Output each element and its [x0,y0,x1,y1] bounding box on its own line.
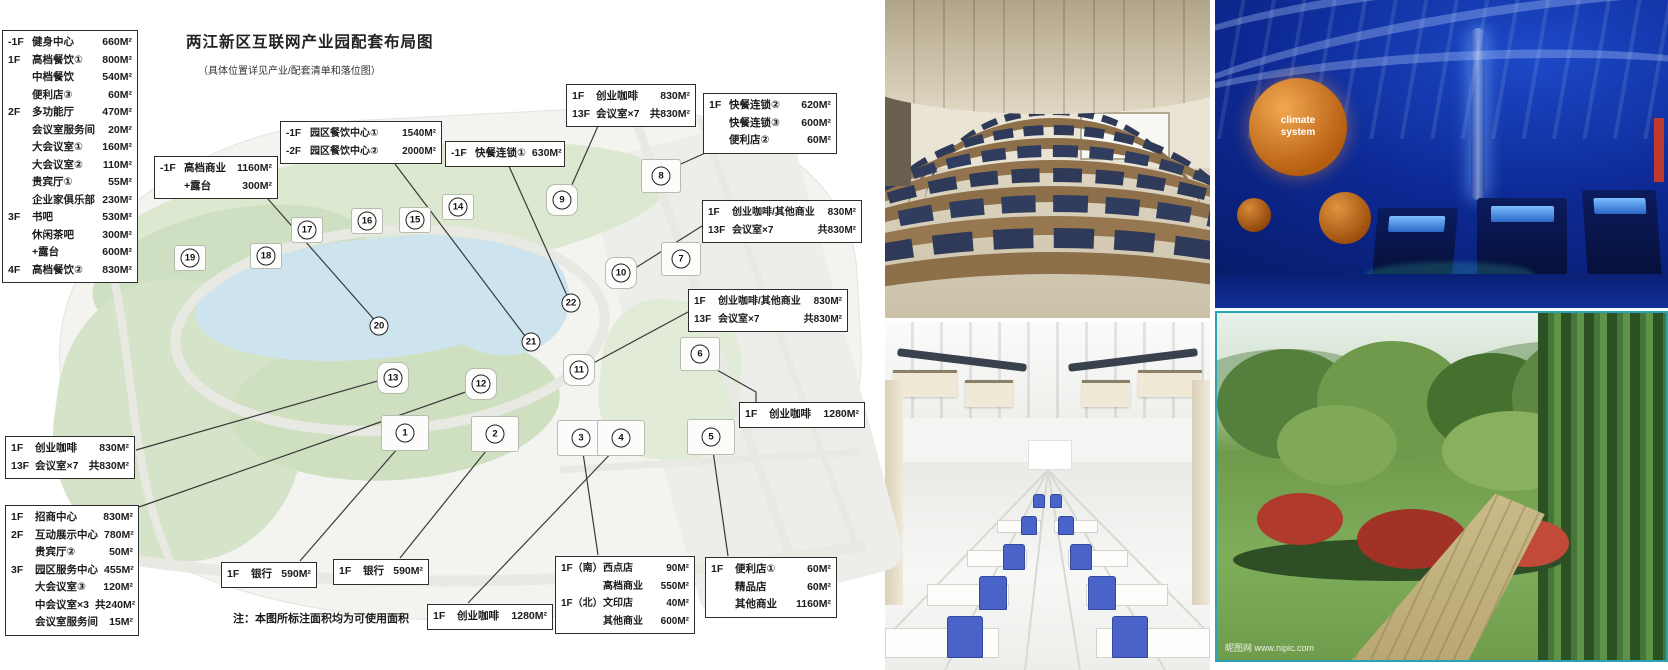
area-value: 60M² [801,579,831,597]
legend-service-center: 1F招商中心830M²2F互动展示中心780M²贵宾厅②50M²3F园区服务中心… [5,505,139,636]
area-value: 630M² [526,145,562,163]
callout-row: +露台300M² [160,178,272,196]
map-marker-2: 2 [486,425,505,444]
area-value: 20M² [102,122,132,140]
area-value: 600M² [795,115,831,133]
podium-screen [1491,206,1554,222]
watermark: 昵图网 www.nipic.com [1225,641,1314,654]
facility-name: 高档商业 [603,578,643,596]
podium-screen [1388,216,1445,232]
floor-label: 1F [708,204,732,222]
callout-row: 1F银行590M² [339,563,423,581]
callout-row: 其他商业600M² [561,613,689,631]
area-value: 660M² [96,34,132,52]
map-marker-22: 22 [562,294,581,313]
facility-name: 书吧 [32,209,53,227]
facility-name: 会议室服务间 [32,122,95,140]
floor-label: 13F [11,458,35,476]
blue-chair [1088,576,1116,610]
area-value: 830M² [93,440,129,458]
area-value: 830M² [808,293,842,311]
callout-row: 1F银行590M² [227,566,311,584]
callout-row: 13F会议室×7共830M² [11,458,129,476]
floor-label: 1F [709,97,729,115]
facility-name: +露台 [32,244,59,262]
facility-name: 会议室服务间 [35,614,98,632]
map-marker-13: 13 [384,369,403,388]
map-marker-10: 10 [612,264,631,283]
bamboo-grove [1538,313,1666,660]
facility-name: 贵宾厅② [35,544,75,562]
callout-premium-retail: -1F高档商业1160M²+露台300M² [154,156,278,199]
map-marker-8: 8 [652,167,671,186]
floor-label: 3F [8,209,32,227]
area-value: 1160M² [790,596,831,614]
floor-label: -1F [8,34,32,52]
red-flower-bush [1257,493,1343,545]
floor-label: 1F（北） [561,595,603,613]
photo-garden-path: 昵图网 www.nipic.com [1215,311,1668,662]
callout-row: 13F会议室×7共830M² [572,106,690,124]
callout-coffee-tower-9: 1F创业咖啡830M²13F会议室×7共830M² [566,84,696,127]
column [1192,380,1210,605]
callout-row: -1F快餐连锁①630M² [451,145,559,163]
exhibit-podium [1582,190,1662,282]
hanging-sign [1082,380,1130,407]
callout-row: 中档餐饮540M² [8,69,132,87]
blue-chair [1021,516,1037,535]
callout-south-north-retail: 1F（南）西点店90M²高档商业550M²1F（北）文印店40M²其他商业600… [555,556,695,634]
facility-name: 创业咖啡 [35,440,77,458]
area-value: 55M² [102,174,132,192]
area-value: 120M² [97,579,133,597]
facility-name: 快餐连锁① [475,145,526,163]
callout-row: 1F快餐连锁②620M² [709,97,831,115]
callout-row: 精品店60M² [711,579,831,597]
area-value: 50M² [103,544,133,562]
area-value: 830M² [654,88,690,106]
lecture-ceiling [885,0,1210,114]
callout-row: 其他商业1160M² [711,596,831,614]
callout-row: 大会议室③120M² [11,579,133,597]
facility-name: 中会议室×3 [35,597,89,615]
callout-row: 会议室服务间15M² [11,614,133,632]
callout-row: 1F（北）文印店40M² [561,595,689,613]
callout-row: 1F创业咖啡830M² [11,440,129,458]
floor-label: -2F [286,143,310,161]
callout-row: 1F便利店①60M² [711,561,831,579]
facility-name: 招商中心 [35,509,77,527]
callout-fastfood-1: -1F快餐连锁①630M² [445,141,565,167]
area-value: 600M² [655,613,689,631]
map-marker-7: 7 [672,250,691,269]
callout-row: 便利店②60M² [709,132,831,150]
floor-label: 13F [572,106,596,124]
area-value: 600M² [96,244,132,262]
callout-row: 快餐连锁③600M² [709,115,831,133]
area-value: 1540M² [396,125,436,143]
map-marker-16: 16 [358,212,377,231]
facility-name: 会议室×7 [596,106,639,124]
callout-row: 1F创业咖啡1280M² [745,406,859,424]
floor-label: 1F [433,608,457,626]
map-marker-15: 15 [406,211,425,230]
facility-name: 创业咖啡/其他商业 [718,293,801,311]
area-value: 620M² [795,97,831,115]
photo-exhibition-blue: climate system [1215,0,1668,308]
facility-name: 文印店 [603,595,633,613]
facility-name: 贵宾厅① [32,174,72,192]
floor-label: 1F [11,509,35,527]
callout-row: 1F创业咖啡830M² [572,88,690,106]
area-value: 1160M² [231,160,272,178]
facility-name: 便利店① [735,561,775,579]
area-value: 共830M² [798,311,842,329]
floor-label: 2F [11,527,35,545]
facility-name: 大会议室③ [35,579,86,597]
facility-name: 大会议室② [32,157,83,175]
facility-name: 创业咖啡 [457,608,499,626]
callout-row: 2F多功能厅470M² [8,104,132,122]
floor-label: 13F [694,311,718,329]
area-value: 共830M² [644,106,690,124]
area-value: 230M² [96,192,132,210]
facility-name: 精品店 [735,579,767,597]
hanging-sign [965,380,1013,407]
facility-name: 便利店③ [32,87,72,105]
callout-row: 13F会议室×7共830M² [694,311,842,329]
screenshot-root: -1F健身中心660M²1F高档餐饮①800M²中档餐饮540M²便利店③60M… [0,0,1668,670]
map-marker-5: 5 [702,428,721,447]
facility-name: 企业家俱乐部 [32,192,95,210]
area-value: 800M² [96,52,132,70]
callout-row: 会议室服务间20M² [8,122,132,140]
callout-row: 贵宾厅①55M² [8,174,132,192]
blue-chair [1070,544,1092,570]
callout-row: 1F高档餐饮①800M² [8,52,132,70]
callout-coffee-6: 1F创业咖啡1280M² [739,402,865,428]
facility-name: 园区餐饮中心① [310,125,378,143]
callout-row: -1F高档商业1160M² [160,160,272,178]
callout-bank-2: 1F银行590M² [333,559,429,585]
map-marker-19: 19 [181,249,200,268]
callout-row: -1F健身中心660M² [8,34,132,52]
callout-row: +露台600M² [8,244,132,262]
area-value: 60M² [801,561,831,579]
map-marker-14: 14 [449,198,468,217]
map-marker-21: 21 [522,333,541,352]
footnote: 注：本图所标注面积均为可使用面积 [233,610,409,626]
callout-row: 3F书吧530M² [8,209,132,227]
facility-name: 高档商业 [184,160,226,178]
facility-name: 创业咖啡/其他商业 [732,204,815,222]
callout-row: -1F园区餐饮中心①1540M² [286,125,436,143]
floor-label: 4F [8,262,32,280]
callout-row: 4F高档餐饮②830M² [8,262,132,280]
blue-chair [947,616,983,658]
blue-chair [1112,616,1148,658]
floor-label: 1F [711,561,735,579]
area-value: 160M² [96,139,132,157]
callout-row: -2F园区餐饮中心②2000M² [286,143,436,161]
callout-retail-5: 1F便利店①60M²精品店60M²其他商业1160M² [705,557,837,618]
callout-row: 1F创业咖啡/其他商业830M² [694,293,842,311]
facility-name: 园区餐饮中心② [310,143,378,161]
area-value: 2000M² [396,143,436,161]
facility-name: 西点店 [603,560,633,578]
facility-name: 会议室×7 [35,458,78,476]
callout-row: 13F会议室×7共830M² [708,222,856,240]
legend-clubhouse: -1F健身中心660M²1F高档餐饮①800M²中档餐饮540M²便利店③60M… [2,30,138,283]
area-value: 830M² [822,204,856,222]
tree-canopy [1277,405,1397,485]
facility-name: 创业咖啡 [596,88,638,106]
area-value: 830M² [96,262,132,280]
floor-label: -1F [451,145,475,163]
far-window [1028,440,1072,470]
blue-chair [1058,516,1074,535]
area-value: 1280M² [817,406,859,424]
climate-system-sphere: climate system [1249,78,1347,176]
callout-row: 2F互动展示中心780M² [11,527,133,545]
area-value: 40M² [660,595,689,613]
area-value: 530M² [96,209,132,227]
area-value: 共830M² [812,222,856,240]
map-marker-1: 1 [396,424,415,443]
callout-fastfood-2-3: 1F快餐连锁②620M²快餐连锁③600M²便利店②60M² [703,93,837,154]
facility-name: 大会议室① [32,139,83,157]
floor-label: 2F [8,104,32,122]
orange-sphere [1319,192,1371,244]
facility-name: 园区服务中心 [35,562,98,580]
callout-coffee-tower-13: 1F创业咖啡830M²13F会议室×7共830M² [5,436,135,479]
callout-row: 大会议室②110M² [8,157,132,175]
facility-name: 多功能厅 [32,104,74,122]
area-value: 455M² [98,562,134,580]
area-value: 60M² [102,87,132,105]
area-value: 60M² [801,132,831,150]
photo-service-hall [885,322,1210,670]
facility-name: 中档餐饮 [32,69,74,87]
area-value: 300M² [96,227,132,245]
desk-row-arc [885,252,1210,318]
photo-lecture-hall [885,0,1210,318]
floor-label: 1F [11,440,35,458]
map-marker-11: 11 [570,361,589,380]
callout-row: 便利店③60M² [8,87,132,105]
floor-label: 3F [11,562,35,580]
facility-name: 其他商业 [603,613,643,631]
facility-name: 高档餐饮② [32,262,83,280]
site-plan-panel: -1F健身中心660M²1F高档餐饮①800M²中档餐饮540M²便利店③60M… [0,0,885,670]
facility-name: 快餐连锁③ [729,115,780,133]
map-marker-20: 20 [370,317,389,336]
callout-row: 1F创业咖啡/其他商业830M² [708,204,856,222]
floor-label: 1F [227,566,251,584]
map-marker-6: 6 [691,345,710,364]
blue-chair [979,576,1007,610]
orange-sphere [1237,198,1271,232]
area-value: 90M² [660,560,689,578]
floor-label: 1F [339,563,363,581]
callout-row: 贵宾厅②50M² [11,544,133,562]
callout-coffee-12: 1F创业咖啡1280M² [427,604,553,630]
red-banner [1654,118,1664,182]
facility-name: 会议室×7 [718,311,759,329]
area-value: 590M² [387,563,423,581]
callout-row: 3F园区服务中心455M² [11,562,133,580]
facility-name: 高档餐饮① [32,52,83,70]
blue-chair [1003,544,1025,570]
area-value: 830M² [97,509,133,527]
area-value: 共830M² [83,458,129,476]
callout-row: 1F招商中心830M² [11,509,133,527]
floor-label: -1F [160,160,184,178]
callout-bank-1: 1F银行590M² [221,562,317,588]
podium-screen [1593,198,1646,214]
callout-layer: -1F健身中心660M²1F高档餐饮①800M²中档餐饮540M²便利店③60M… [0,0,885,670]
map-marker-9: 9 [553,191,572,210]
facility-name: 互动展示中心 [35,527,98,545]
page-subtitle: （具体位置详见产业/配套清单和落位图） [198,62,381,77]
callout-row: 休闲茶吧300M² [8,227,132,245]
floor-label: 1F（南） [561,560,603,578]
facility-name: 便利店② [729,132,769,150]
area-value: 550M² [655,578,689,596]
climate-system-label: climate system [1270,115,1326,139]
facility-name: 其他商业 [735,596,777,614]
map-marker-17: 17 [298,221,317,240]
exhibition-floor [1215,274,1668,308]
facility-name: 健身中心 [32,34,74,52]
callout-dining-centers: -1F园区餐饮中心①1540M²-2F园区餐饮中心②2000M² [280,121,442,164]
floor-label: 13F [708,222,732,240]
blue-chair [1050,494,1062,508]
area-value: 590M² [275,566,311,584]
floor-label: 1F [8,52,32,70]
area-value: 300M² [236,178,272,196]
area-value: 540M² [96,69,132,87]
facility-name: 银行 [251,566,272,584]
facility-name: 银行 [363,563,384,581]
callout-row: 1F（南）西点店90M² [561,560,689,578]
facility-name: 快餐连锁② [729,97,780,115]
map-marker-12: 12 [472,375,491,394]
facility-name: 创业咖啡 [769,406,811,424]
map-marker-3: 3 [572,429,591,448]
area-value: 15M² [103,614,133,632]
callout-row: 大会议室①160M² [8,139,132,157]
callout-row: 企业家俱乐部230M² [8,192,132,210]
map-marker-18: 18 [257,247,276,266]
callout-coffee-tower-10: 1F创业咖啡/其他商业830M²13F会议室×7共830M² [702,200,862,243]
area-value: 1280M² [505,608,547,626]
callout-coffee-tower-11: 1F创业咖啡/其他商业830M²13F会议室×7共830M² [688,289,848,332]
blue-chair [1033,494,1045,508]
page-title: 两江新区互联网产业园配套布局图 [186,30,434,52]
floor-label: -1F [286,125,310,143]
area-value: 共240M² [89,597,135,615]
area-value: 780M² [98,527,134,545]
facility-name: +露台 [184,178,211,196]
floor-label: 1F [572,88,596,106]
callout-row: 高档商业550M² [561,578,689,596]
glass-tube-exhibit [1471,28,1485,200]
area-value: 470M² [96,104,132,122]
area-value: 110M² [97,157,132,175]
map-marker-4: 4 [612,429,631,448]
facility-name: 休闲茶吧 [32,227,74,245]
callout-row: 1F创业咖啡1280M² [433,608,547,626]
facility-name: 会议室×7 [732,222,773,240]
floor-label: 1F [694,293,718,311]
callout-row: 中会议室×3共240M² [11,597,133,615]
floor-label: 1F [745,406,769,424]
